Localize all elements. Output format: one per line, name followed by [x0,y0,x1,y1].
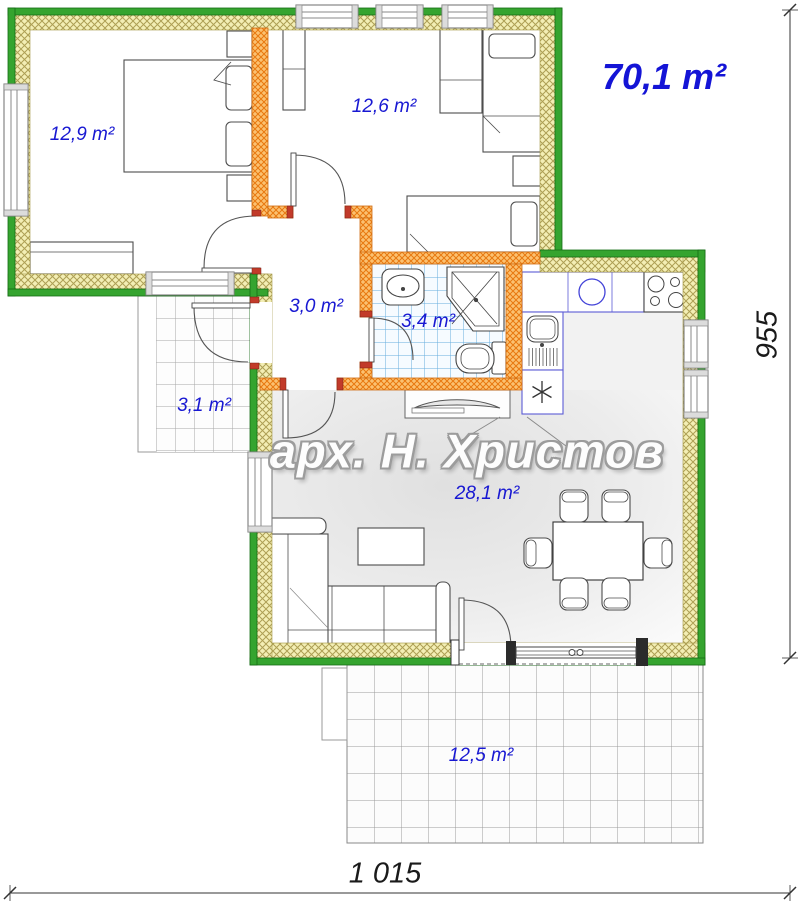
slider-handle [577,650,583,656]
sofa-left [266,534,328,652]
coffee-table [358,528,424,565]
pillow [489,34,535,58]
chair [602,490,630,522]
dining-table [553,522,643,580]
width-dimension-label: 1 015 [349,858,422,891]
nightstand [513,156,541,186]
terrace-tiles [347,665,703,843]
chair [644,538,672,568]
porch-area-label: 3,1 m² [177,395,231,417]
sofa-armrest [436,582,450,652]
door-leaf [291,153,296,206]
door-leaf [192,303,250,308]
chair [602,578,630,610]
window-top-2 [376,5,423,28]
window-porch [146,272,234,295]
window-top-3 [442,5,493,28]
door-arc-bedroom1 [204,216,256,268]
nightstand [227,175,252,201]
floor-plan-canvas: 12,9 m² 12,6 m² 3,0 m² 3,4 m² 3,1 m² 28,… [0,0,800,901]
pillow [226,66,252,110]
door-arc-bedroom2 [293,155,345,204]
sofa-armrest [266,518,326,534]
architect-watermark: арх. Н. Христов [270,424,664,479]
bedroom1-furniture [30,31,252,274]
cabinet [440,28,482,113]
window-right-1 [684,320,708,368]
pillow [226,122,252,166]
door-leaf [369,318,374,362]
bathroom-area-label: 3,4 m² [401,311,455,333]
window-living-left [248,452,272,532]
bedroom2-area-label: 12,6 m² [352,96,416,118]
chair [560,490,588,522]
window-left [4,84,28,216]
door-leaf [459,598,464,650]
nightstand [227,31,252,57]
porch-tiles [156,296,250,452]
chair [560,578,588,610]
living-area-label: 28,1 m² [455,483,519,505]
slider-handle [569,650,575,656]
chair [524,538,552,568]
terrace-step [322,668,347,740]
total-area-label: 70,1 m² [602,56,726,98]
pillow [511,202,537,246]
dresser [30,242,133,274]
terrace-area-label: 12,5 m² [449,745,513,767]
height-dimension-label: 955 [752,311,785,359]
hallway-area-label: 3,0 m² [289,296,343,318]
bedroom1-area-label: 12,9 m² [50,124,114,146]
window-top-1 [296,5,358,28]
kitchen-counter [522,272,644,312]
bedroom2-furniture [283,28,541,252]
window-right-2 [684,370,708,418]
